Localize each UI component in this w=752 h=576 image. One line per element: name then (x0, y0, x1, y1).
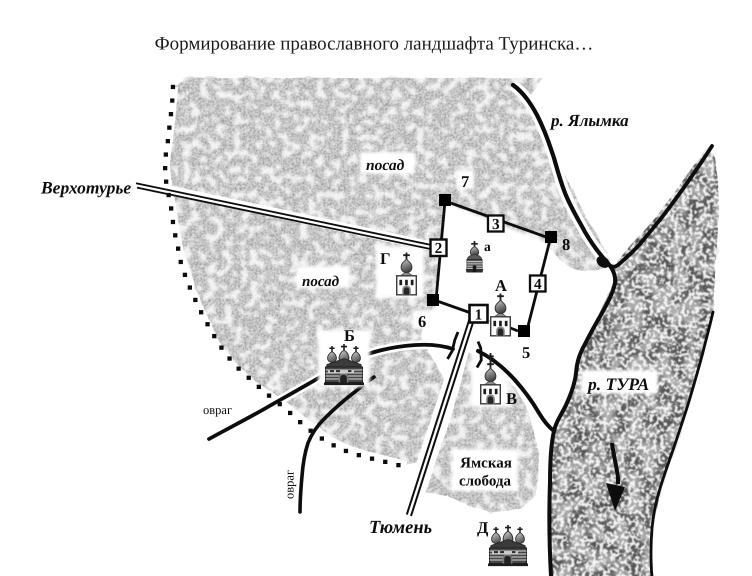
svg-text:В: В (506, 389, 517, 408)
svg-text:р. Ялымка: р. Ялымка (549, 111, 629, 130)
svg-text:р. ТУРА: р. ТУРА (586, 374, 649, 394)
svg-text:овраг: овраг (203, 403, 232, 417)
svg-text:Ямская: Ямская (460, 456, 512, 472)
svg-text:8: 8 (562, 235, 570, 254)
svg-text:7: 7 (461, 172, 469, 191)
svg-text:Верхотурье: Верхотурье (40, 178, 131, 198)
svg-text:посад: посад (366, 157, 405, 174)
svg-text:1: 1 (475, 307, 483, 324)
svg-text:слобода: слобода (459, 474, 512, 490)
svg-text:посад: посад (302, 274, 340, 290)
svg-text:2: 2 (435, 240, 443, 257)
svg-text:Тюмень: Тюмень (369, 518, 432, 538)
svg-text:овраг: овраг (283, 470, 297, 499)
svg-text:3: 3 (492, 216, 500, 233)
svg-text:5: 5 (522, 343, 530, 362)
svg-text:Б: Б (344, 326, 355, 345)
svg-text:Г: Г (380, 249, 391, 268)
svg-text:Формирование православного лан: Формирование православного ландшафта Тур… (155, 34, 594, 55)
svg-text:А: А (495, 276, 507, 295)
svg-text:4: 4 (534, 276, 542, 293)
svg-text:6: 6 (418, 312, 426, 331)
svg-text:а: а (484, 239, 491, 254)
svg-text:Д: Д (477, 518, 489, 537)
